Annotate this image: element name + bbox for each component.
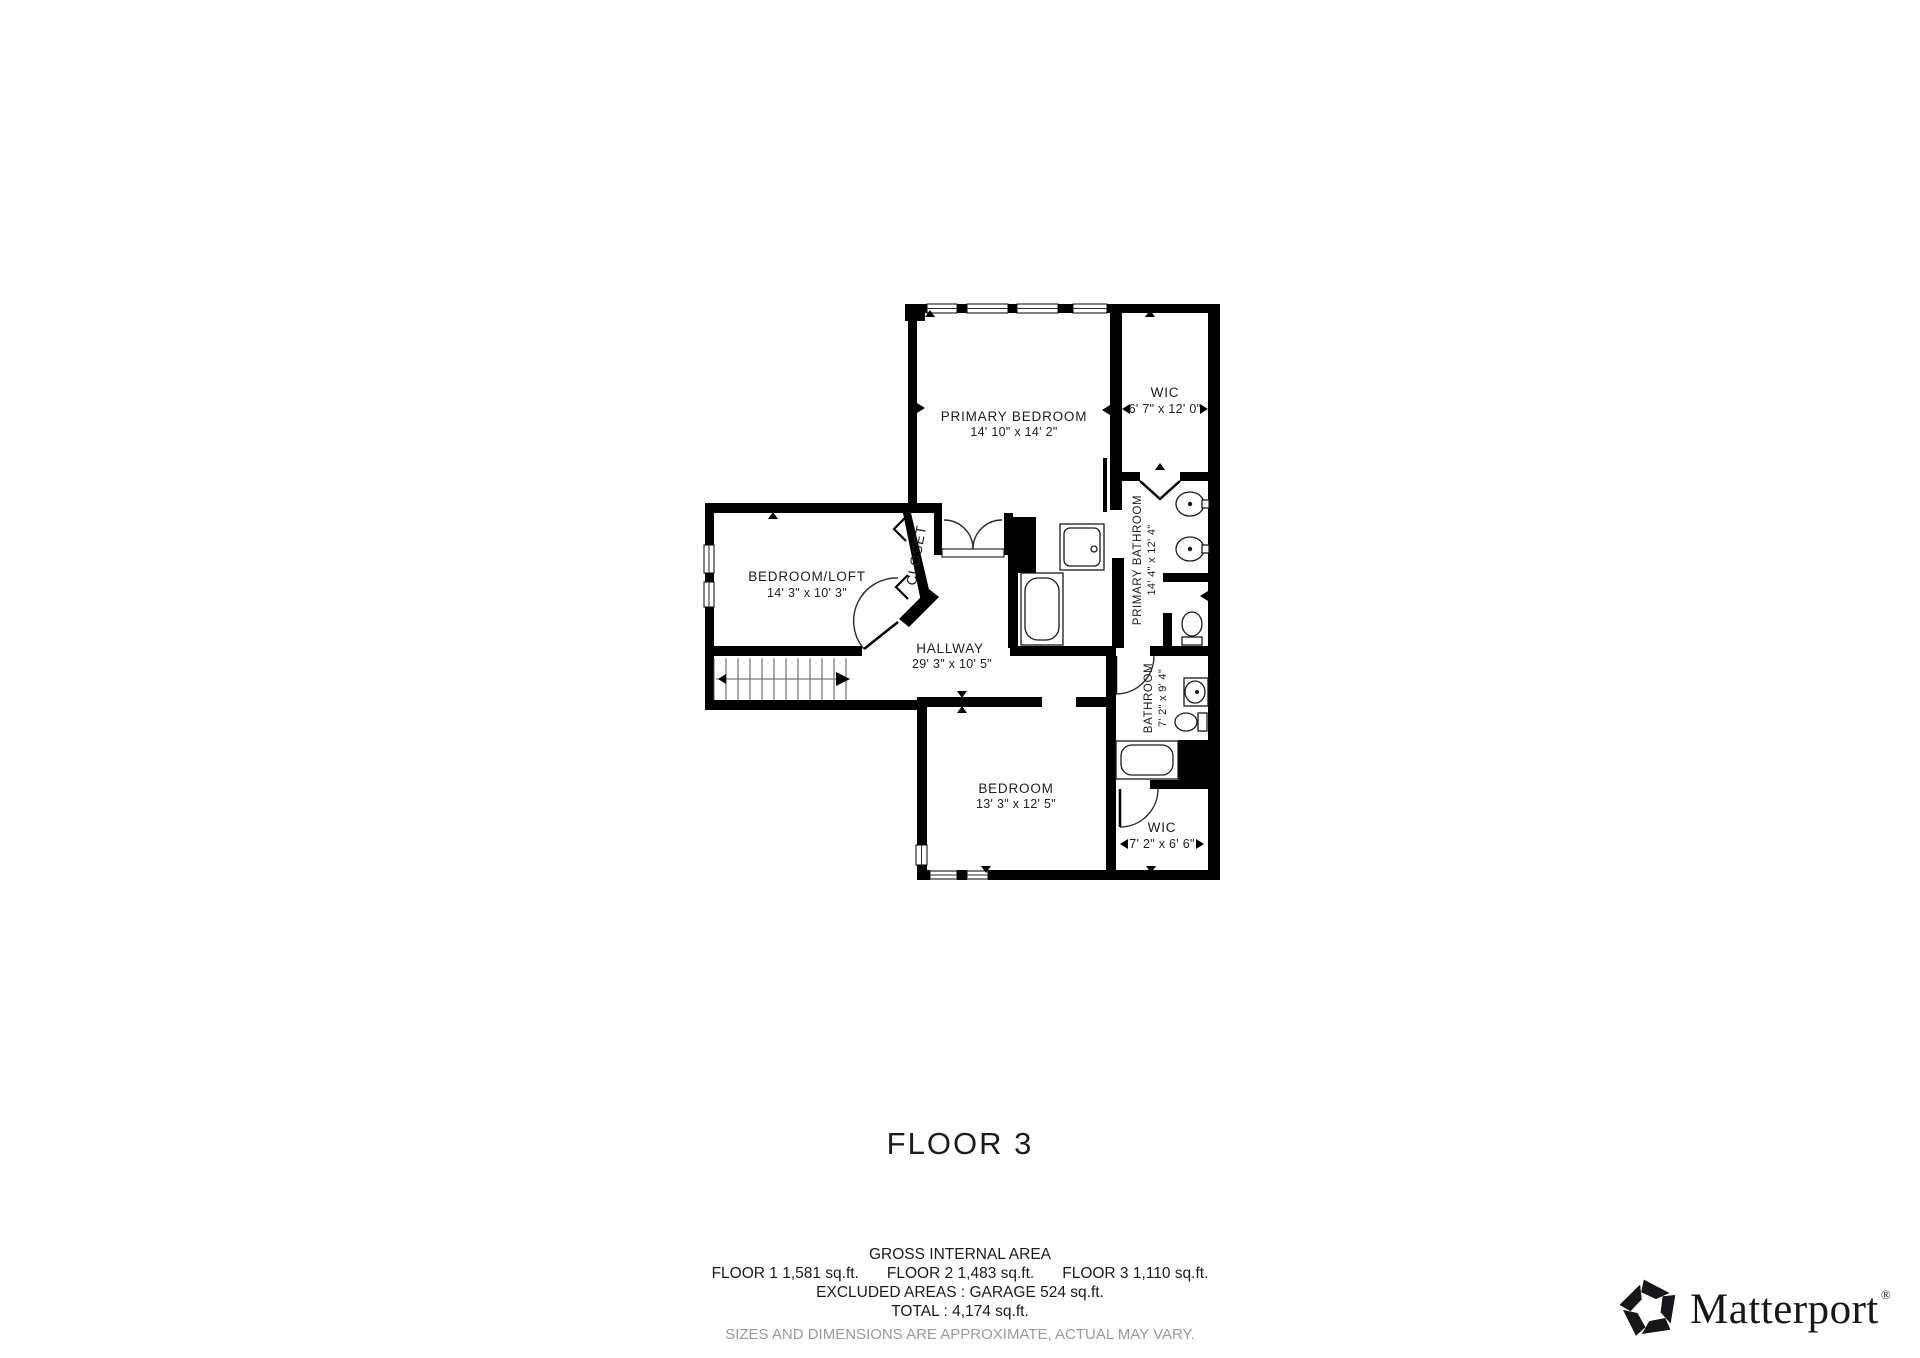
gross-internal-area-heading: GROSS INTERNAL AREA [0, 1245, 1920, 1264]
floor-2-area: FLOOR 2 1,483 sq.ft. [887, 1265, 1034, 1282]
room-name: BEDROOM/LOFT [748, 569, 866, 584]
bathtub-symbol [1021, 573, 1063, 645]
sink-symbol [1176, 492, 1209, 516]
double-door [942, 520, 1004, 557]
pocket-door [1103, 458, 1107, 512]
room-dimensions: 6' 7" x 12' 0" [1129, 402, 1202, 416]
room-label-wic-upper: WIC 6' 7" x 12' 0" [1129, 385, 1202, 416]
room-label-bathroom: BATHROOM 7' 2" x 9' 4" [1143, 663, 1169, 733]
matterport-wordmark: Matterport [1690, 1285, 1879, 1334]
room-name: BEDROOM [978, 781, 1053, 796]
floor-title: FLOOR 3 [0, 1126, 1920, 1162]
loft-door [854, 578, 898, 649]
sink-symbol [1184, 678, 1208, 706]
registered-mark: ® [1881, 1287, 1891, 1303]
room-name: WIC [1151, 385, 1180, 400]
room-label-wic-lower: WIC 7' 2" x 6' 6" [1129, 820, 1195, 851]
room-dimensions: 7' 2" x 9' 4" [1157, 669, 1169, 727]
toilet-symbol [1175, 713, 1207, 731]
matterport-logo: Matterport ® [1618, 1276, 1891, 1342]
room-dimensions: 7' 2" x 6' 6" [1129, 837, 1195, 851]
toilet-symbol [1182, 612, 1202, 645]
stairs [714, 658, 850, 700]
room-name: BATHROOM [1143, 663, 1155, 733]
floor-3-area: FLOOR 3 1,110 sq.ft. [1062, 1265, 1208, 1282]
closet-door-chevron [894, 517, 906, 541]
bathtub-symbol [1116, 741, 1178, 779]
matterport-pinwheel-icon [1618, 1276, 1680, 1342]
room-dimensions: 14' 10" x 14' 2" [970, 425, 1057, 439]
floor-plan-page: PRIMARY BEDROOM 14' 10" x 14' 2" WIC 6' … [0, 0, 1920, 1358]
sink-symbol [1176, 537, 1209, 561]
shower-symbol [1060, 524, 1104, 570]
room-dimensions: 14' 3" x 10' 3" [767, 586, 847, 600]
room-name: WIC [1148, 820, 1177, 835]
room-name: HALLWAY [916, 641, 984, 656]
room-name: PRIMARY BATHROOM [1132, 495, 1144, 625]
room-label-bedroom: BEDROOM 13' 3" x 12' 5" [976, 781, 1056, 811]
floor-1-area: FLOOR 1 1,581 sq.ft. [712, 1265, 859, 1282]
room-name: PRIMARY BEDROOM [941, 409, 1088, 424]
room-label-hallway: HALLWAY 29' 3" x 10' 5" [912, 641, 992, 671]
room-dimensions: 13' 3" x 12' 5" [976, 797, 1056, 811]
chevron-door [1140, 481, 1180, 499]
room-dimensions: 14' 4" x 12' 4" [1146, 525, 1158, 596]
room-label-primary-bathroom: PRIMARY BATHROOM 14' 4" x 12' 4" [1132, 495, 1158, 625]
room-label-bedroom-loft: BEDROOM/LOFT 14' 3" x 10' 3" [748, 569, 866, 600]
stair-direction-arrow-icon [836, 672, 850, 686]
room-dimensions: 29' 3" x 10' 5" [912, 657, 992, 671]
room-label-primary-bedroom: PRIMARY BEDROOM 14' 10" x 14' 2" [941, 409, 1088, 439]
